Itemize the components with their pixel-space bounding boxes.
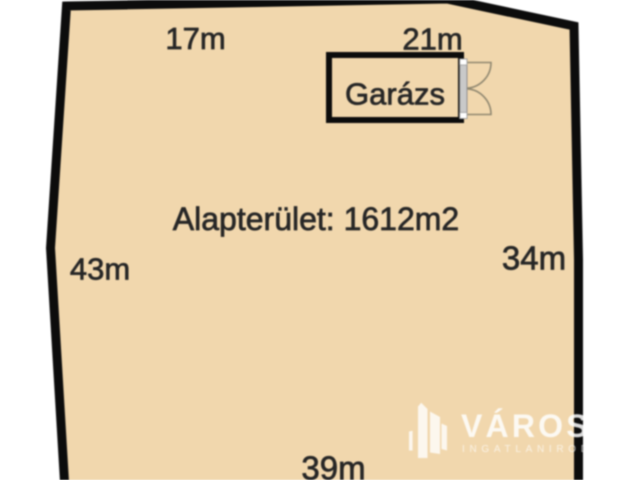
svg-text:17m: 17m [165, 21, 225, 56]
svg-text:39m: 39m [301, 450, 365, 480]
svg-text:43m: 43m [70, 252, 130, 287]
svg-text:Alapterület: 1612m2: Alapterület: 1612m2 [173, 201, 459, 237]
svg-text:INGATLANIRODA: INGATLANIRODA [462, 444, 604, 455]
svg-text:VÁROSI: VÁROSI [461, 408, 603, 444]
svg-text:21m: 21m [402, 22, 462, 57]
svg-text:Garázs: Garázs [345, 77, 445, 112]
svg-text:34m: 34m [502, 240, 566, 277]
